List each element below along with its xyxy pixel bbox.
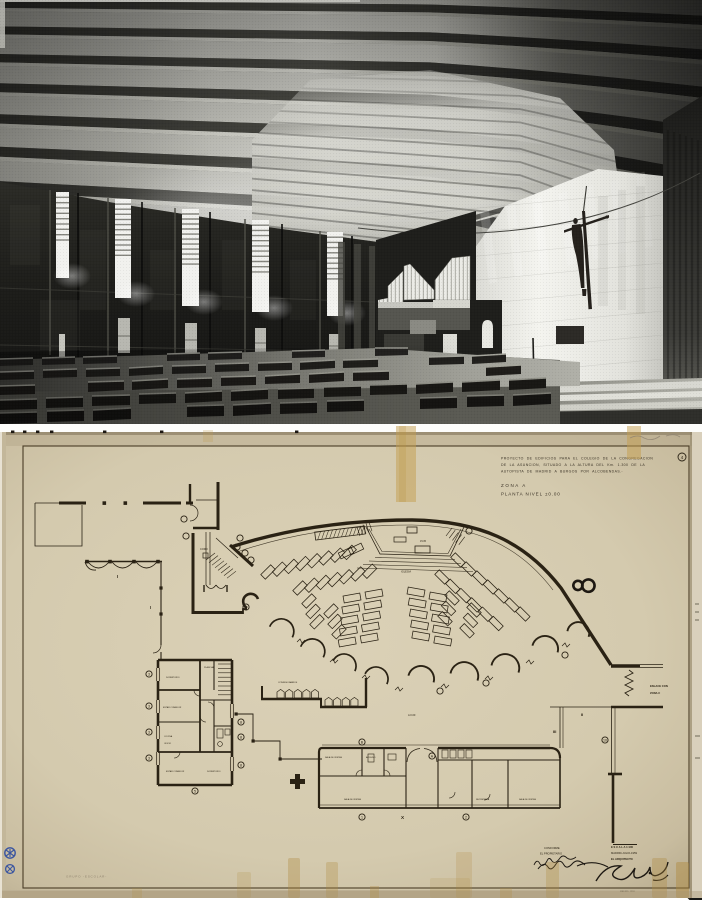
svg-text:2: 2 [465, 815, 467, 819]
svg-text:3: 3 [148, 756, 150, 760]
svg-text:SECRETARIA: SECRETARIA [476, 798, 490, 801]
svg-text:SALA DE VISITAS: SALA DE VISITAS [325, 756, 343, 759]
svg-text:15.05: 15.05 [420, 540, 427, 543]
svg-text:GRUPO -ESCOLAR-: GRUPO -ESCOLAR- [66, 875, 107, 879]
svg-text:1: 1 [361, 815, 363, 819]
svg-text:EL PROPIETARIO: EL PROPIETARIO [540, 852, 562, 856]
svg-text:ARCHIVO: ARCHIVO [366, 756, 376, 759]
svg-text:ESTAR COMEDOR: ESTAR COMEDOR [163, 706, 182, 709]
svg-text:3: 3 [148, 704, 150, 708]
svg-text:EL ARQUITECTO: EL ARQUITECTO [611, 857, 633, 861]
svg-text:AUTOPISTA DE MADRID A BURGOS P: AUTOPISTA DE MADRID A BURGOS POR ALCOBEN… [501, 470, 623, 474]
svg-text:A 0.00: A 0.00 [408, 713, 416, 717]
svg-text:PLANTA NIVEL ±0.00: PLANTA NIVEL ±0.00 [501, 492, 561, 497]
svg-text:8: 8 [240, 763, 242, 767]
svg-text:10: 10 [603, 738, 607, 742]
svg-text:CONFESONARIOS: CONFESONARIOS [278, 681, 298, 684]
svg-text:CONFORME: CONFORME [544, 846, 560, 850]
svg-text:DORMITORIO: DORMITORIO [207, 771, 221, 773]
svg-text:8: 8 [240, 735, 242, 739]
svg-text:3: 3 [148, 672, 150, 676]
svg-text:ENLACE CON: ENLACE CON [650, 684, 668, 688]
svg-text:OFICIO: OFICIO [164, 743, 172, 745]
svg-text:MADRID-JULIO-1959: MADRID-JULIO-1959 [611, 851, 637, 855]
svg-text:SALA DE VISITAS: SALA DE VISITAS [344, 798, 362, 801]
svg-text:SALA DE VISITAS: SALA DE VISITAS [519, 798, 537, 801]
svg-text:COCINA: COCINA [164, 735, 173, 738]
svg-text:IGLESIA: IGLESIA [401, 570, 411, 574]
svg-text:CORO: CORO [200, 547, 208, 551]
svg-text:DE LA ASUNCION, SITUADO A LA A: DE LA ASUNCION, SITUADO A LA ALTURA DEL … [501, 463, 645, 467]
svg-text:ZONA C: ZONA C [650, 691, 660, 695]
svg-text:E S C A L A 1:100: E S C A L A 1:100 [611, 845, 633, 849]
svg-text:3: 3 [148, 730, 150, 734]
svg-text:8: 8 [240, 720, 242, 724]
svg-text:ESTAR COMEDOR: ESTAR COMEDOR [166, 770, 185, 773]
svg-text:ZONA A: ZONA A [501, 483, 527, 488]
svg-text:III: III [553, 729, 556, 734]
svg-text:PLANCHA: PLANCHA [204, 666, 214, 669]
svg-text:DORMITORIO: DORMITORIO [166, 677, 180, 679]
svg-text:5: 5 [194, 789, 196, 793]
svg-text:I: I [117, 574, 118, 579]
svg-text:II: II [581, 712, 583, 717]
svg-text:I: I [150, 605, 151, 610]
